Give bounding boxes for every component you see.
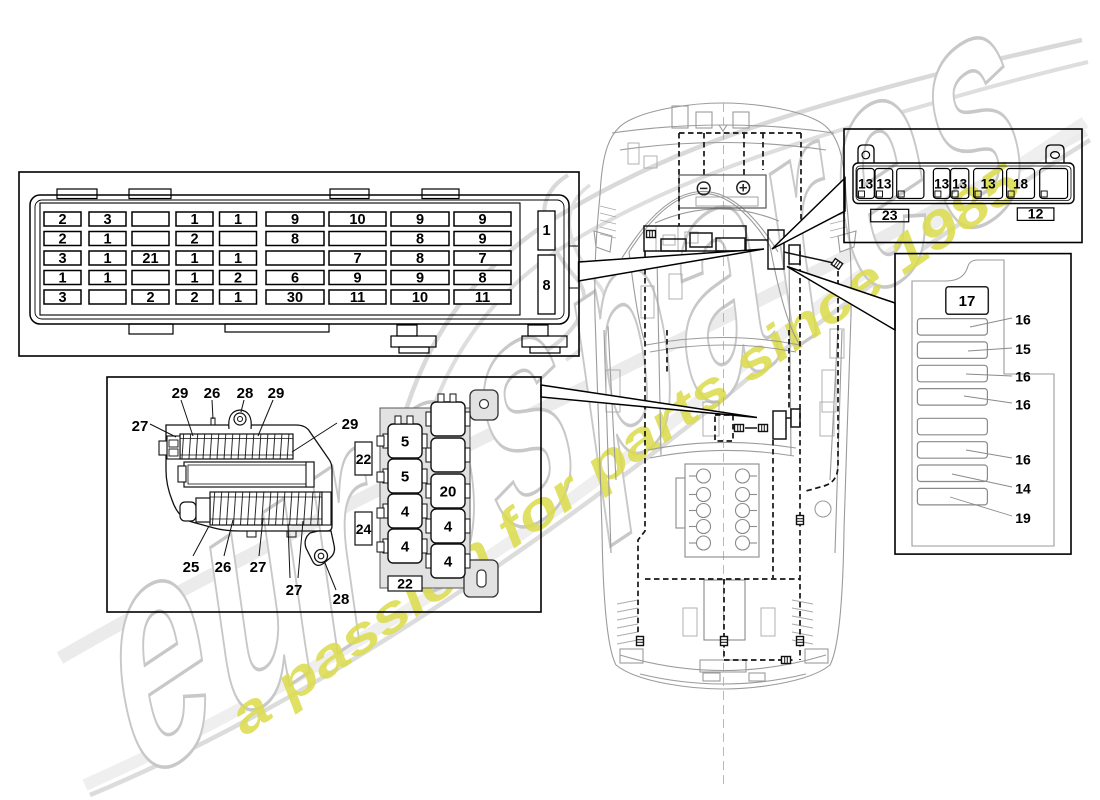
svg-text:2: 2 — [58, 212, 66, 228]
svg-text:25: 25 — [183, 559, 200, 576]
svg-text:4: 4 — [401, 504, 410, 521]
svg-text:1: 1 — [190, 251, 198, 267]
svg-text:2: 2 — [190, 290, 198, 306]
svg-text:28: 28 — [237, 385, 254, 402]
svg-text:13: 13 — [934, 177, 950, 192]
svg-text:1: 1 — [234, 212, 242, 228]
svg-text:28: 28 — [333, 591, 350, 608]
svg-text:14: 14 — [1015, 481, 1031, 497]
svg-text:29: 29 — [172, 385, 189, 402]
svg-text:2: 2 — [234, 271, 242, 287]
svg-text:24: 24 — [356, 521, 372, 537]
svg-text:1: 1 — [103, 251, 111, 267]
svg-text:1: 1 — [58, 271, 66, 287]
svg-text:30: 30 — [287, 290, 303, 306]
svg-text:18: 18 — [1013, 177, 1029, 192]
svg-text:8: 8 — [478, 271, 486, 287]
svg-text:9: 9 — [416, 212, 424, 228]
svg-text:19: 19 — [1015, 510, 1031, 526]
svg-text:12: 12 — [1028, 206, 1044, 222]
svg-text:13: 13 — [981, 177, 997, 192]
svg-text:1: 1 — [234, 251, 242, 267]
svg-text:27: 27 — [132, 418, 149, 435]
svg-text:29: 29 — [268, 385, 285, 402]
svg-text:13: 13 — [858, 177, 874, 192]
svg-text:1: 1 — [234, 290, 242, 306]
svg-text:6: 6 — [291, 271, 299, 287]
svg-text:21: 21 — [142, 251, 158, 267]
svg-text:4: 4 — [401, 539, 410, 556]
svg-text:27: 27 — [250, 559, 267, 576]
svg-text:5: 5 — [401, 469, 409, 486]
svg-text:8: 8 — [416, 232, 424, 248]
svg-text:11: 11 — [350, 290, 365, 306]
svg-text:2: 2 — [58, 232, 66, 248]
svg-text:4: 4 — [444, 519, 453, 536]
svg-text:22: 22 — [356, 451, 372, 467]
svg-text:1: 1 — [103, 271, 111, 287]
svg-text:9: 9 — [478, 212, 486, 228]
svg-text:20: 20 — [440, 484, 457, 501]
svg-text:23: 23 — [882, 207, 898, 223]
svg-text:16: 16 — [1015, 369, 1031, 385]
svg-text:1: 1 — [190, 212, 198, 228]
svg-text:3: 3 — [58, 251, 66, 267]
svg-text:16: 16 — [1015, 452, 1031, 468]
svg-text:7: 7 — [478, 251, 486, 267]
svg-text:16: 16 — [1015, 396, 1031, 412]
svg-text:11: 11 — [475, 290, 490, 306]
svg-text:8: 8 — [416, 251, 424, 267]
svg-text:1: 1 — [190, 271, 198, 287]
svg-text:17: 17 — [959, 293, 976, 310]
svg-text:5: 5 — [401, 434, 409, 451]
svg-text:9: 9 — [416, 271, 424, 287]
svg-text:7: 7 — [353, 251, 361, 267]
svg-text:13: 13 — [876, 177, 892, 192]
svg-text:27: 27 — [286, 582, 303, 599]
svg-text:9: 9 — [478, 232, 486, 248]
svg-text:8: 8 — [291, 232, 299, 248]
svg-text:3: 3 — [58, 290, 66, 306]
svg-text:8: 8 — [542, 278, 550, 294]
svg-text:9: 9 — [291, 212, 299, 228]
svg-text:3: 3 — [103, 212, 111, 228]
svg-text:4: 4 — [444, 554, 453, 571]
svg-text:2: 2 — [146, 290, 154, 306]
svg-text:13: 13 — [952, 177, 968, 192]
svg-text:2: 2 — [190, 232, 198, 248]
svg-text:22: 22 — [397, 576, 413, 592]
svg-text:16: 16 — [1015, 312, 1031, 328]
svg-text:1: 1 — [103, 232, 111, 248]
svg-text:26: 26 — [215, 559, 232, 576]
svg-text:10: 10 — [412, 290, 428, 306]
svg-text:10: 10 — [349, 212, 365, 228]
svg-text:29: 29 — [342, 416, 359, 433]
svg-text:9: 9 — [353, 271, 361, 287]
svg-text:26: 26 — [204, 385, 221, 402]
svg-text:1: 1 — [542, 223, 550, 239]
svg-text:15: 15 — [1015, 341, 1031, 357]
